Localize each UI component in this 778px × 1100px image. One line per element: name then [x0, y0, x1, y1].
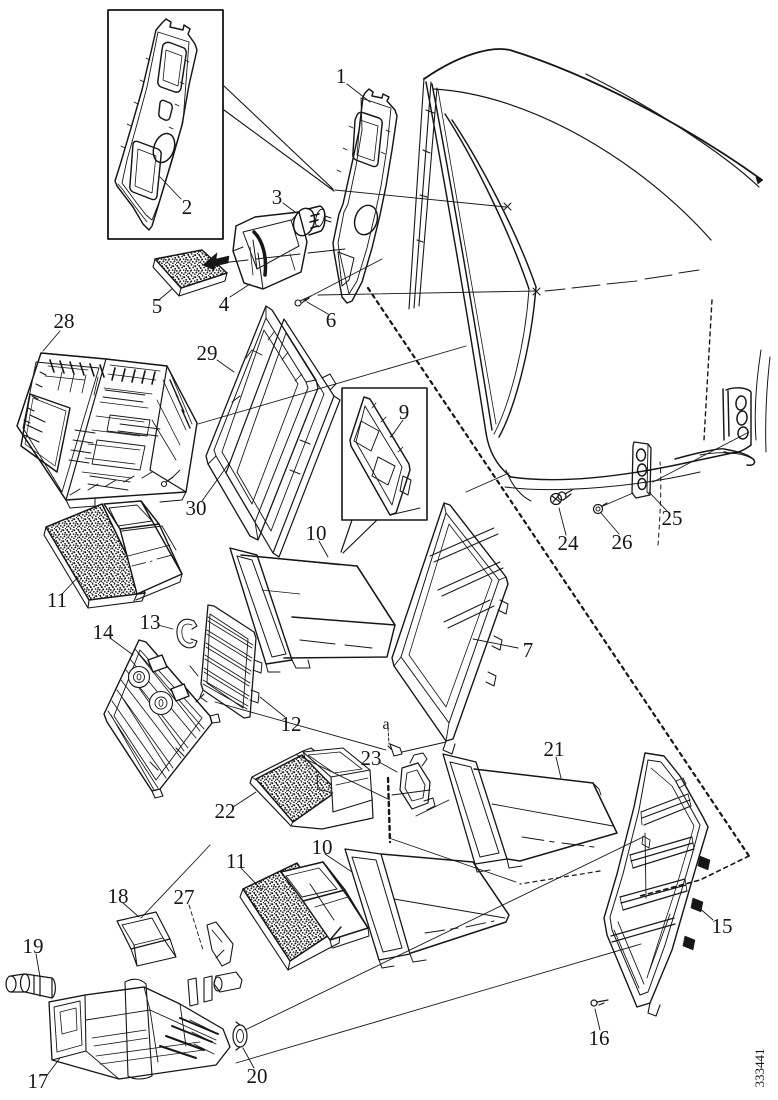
svg-text:11: 11	[226, 849, 246, 873]
svg-text:23: 23	[361, 746, 382, 770]
svg-text:15: 15	[712, 914, 733, 938]
svg-text:10: 10	[306, 521, 327, 545]
svg-text:7: 7	[523, 638, 534, 662]
svg-text:2: 2	[182, 195, 193, 219]
svg-text:22: 22	[215, 799, 236, 823]
svg-text:21: 21	[544, 737, 565, 761]
svg-text:17: 17	[28, 1069, 49, 1093]
svg-text:11: 11	[47, 588, 67, 612]
svg-text:6: 6	[326, 308, 337, 332]
svg-text:18: 18	[108, 884, 129, 908]
svg-text:25: 25	[662, 506, 683, 530]
svg-text:1: 1	[336, 64, 347, 88]
svg-text:4: 4	[219, 292, 230, 316]
svg-text:a: a	[382, 716, 389, 733]
svg-text:9: 9	[399, 400, 410, 424]
svg-text:16: 16	[589, 1026, 610, 1050]
svg-text:20: 20	[247, 1064, 268, 1088]
svg-text:5: 5	[152, 294, 163, 318]
svg-text:19: 19	[23, 934, 44, 958]
svg-text:29: 29	[197, 341, 218, 365]
svg-text:26: 26	[612, 530, 633, 554]
svg-text:333441: 333441	[752, 1049, 767, 1088]
svg-text:12: 12	[281, 712, 302, 736]
svg-text:3: 3	[272, 185, 283, 209]
svg-text:27: 27	[174, 885, 195, 909]
svg-text:28: 28	[54, 309, 75, 333]
svg-text:14: 14	[93, 620, 115, 644]
svg-text:24: 24	[558, 531, 580, 555]
svg-text:30: 30	[186, 496, 207, 520]
svg-text:10: 10	[312, 835, 333, 859]
svg-text:13: 13	[140, 610, 161, 634]
